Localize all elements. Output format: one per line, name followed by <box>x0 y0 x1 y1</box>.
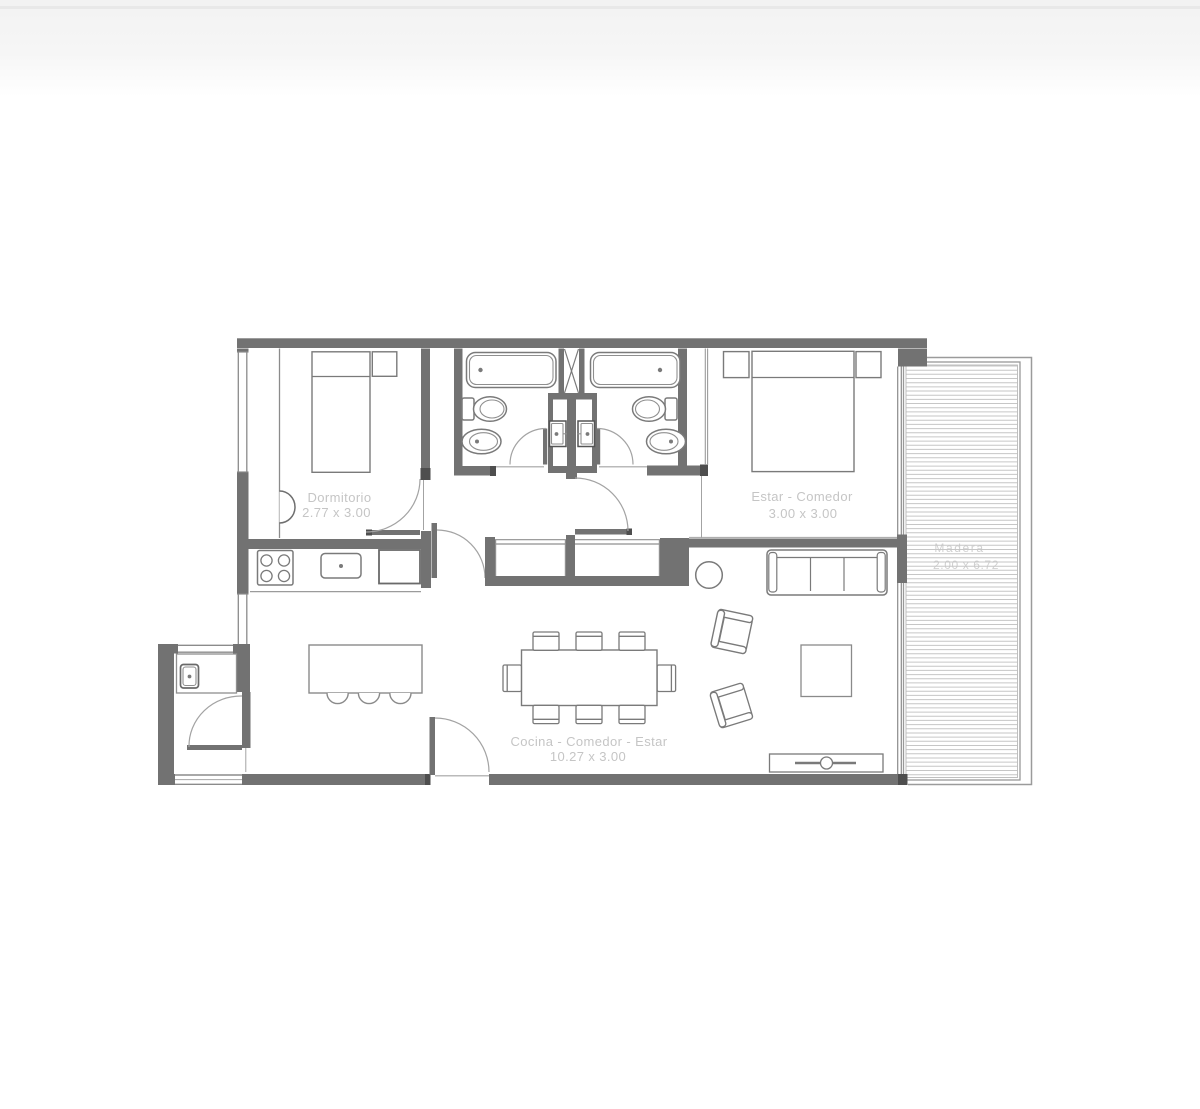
svg-text:Madera: Madera <box>934 541 984 555</box>
svg-text:Estar - Comedor: Estar - Comedor <box>751 489 853 504</box>
svg-text:10.27 x 3.00: 10.27 x 3.00 <box>550 749 626 764</box>
svg-text:2.77 x 3.00: 2.77 x 3.00 <box>302 505 371 520</box>
svg-text:2.00 x 6.72: 2.00 x 6.72 <box>933 558 999 572</box>
svg-text:Cocina - Comedor - Estar: Cocina - Comedor - Estar <box>511 734 668 749</box>
svg-text:3.00 x 3.00: 3.00 x 3.00 <box>769 506 838 521</box>
svg-text:Dormitorio: Dormitorio <box>308 490 372 505</box>
